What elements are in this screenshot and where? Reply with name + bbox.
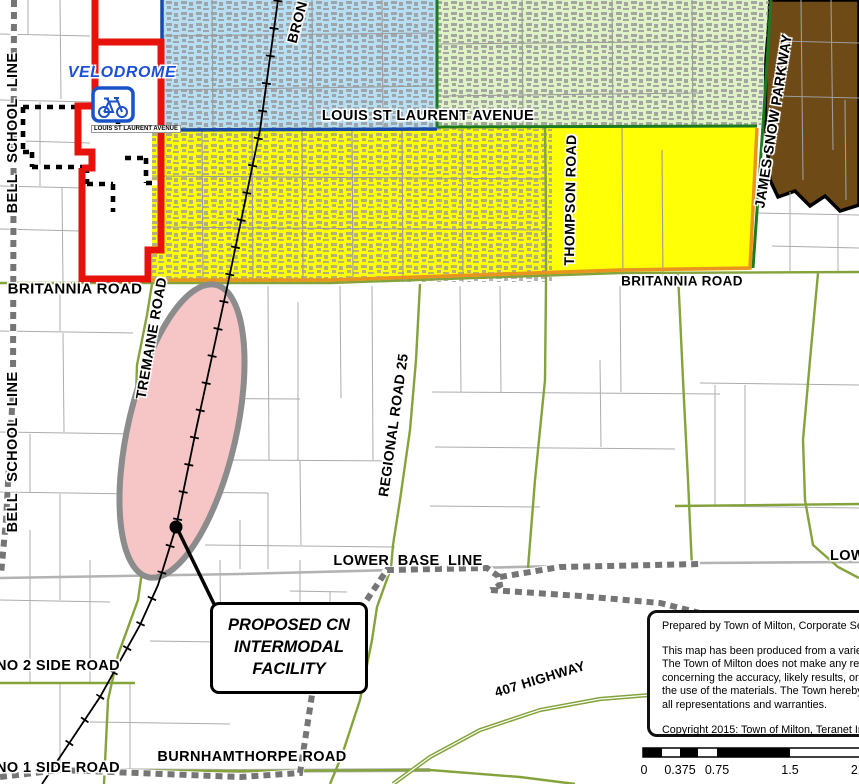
disclaimer-body-1: This map has been produced from a variet (662, 645, 859, 659)
callout-line-1: PROPOSED CN (228, 615, 350, 637)
velodrome-label: VELODROME (68, 64, 177, 82)
disclaimer-body-2: The Town of Milton does not make any rep (662, 658, 859, 672)
road-label-bell-school-line-south: BELL SCHOOL LINE (5, 372, 21, 533)
disclaimer-body-5: all representations and warranties. (662, 699, 859, 713)
road-label-louis-st-laurent-avenue: LOUIS ST LAURENT AVENUE (322, 108, 534, 124)
road-label-no-2-side-road: NO 2 SIDE ROAD (0, 658, 120, 674)
scale-bar (643, 748, 859, 757)
road-label-bell-school-line-north: BELL SCHOOL LINE (5, 53, 21, 214)
callout-line-2: INTERMODAL (234, 637, 344, 659)
road-label-no-1-side-road: NO 1 SIDE ROAD (0, 760, 120, 776)
callout-line-3: FACILITY (252, 659, 325, 681)
road-label-britannia-road-west: BRITANNIA ROAD (8, 281, 143, 298)
disclaimer-prepared: Prepared by Town of Milton, Corporate Se… (662, 620, 859, 634)
scale-label-225: 2.25 (851, 763, 859, 777)
road-label-burnhamthorpe-road: BURNHAMTHORPE ROAD (157, 749, 346, 765)
disclaimer-body-3: concerning the accuracy, likely results,… (662, 672, 859, 686)
road-label-thompson-road: THOMPSON ROAD (561, 134, 579, 265)
road-label-britannia-road-east: BRITANNIA ROAD (621, 274, 743, 289)
road-label-lower-base-line: LOWER BASE LINE (333, 553, 482, 569)
red-boundary-outline (78, 0, 161, 279)
proposed-facility-callout: PROPOSED CN INTERMODAL FACILITY (210, 602, 368, 694)
scale-label-0: 0 (641, 763, 648, 777)
facility-location-dot (170, 521, 183, 534)
scale-label-0375: 0.375 (664, 763, 695, 777)
disclaimer-body-4: the use of the materials. The Town hereb… (662, 685, 859, 699)
scale-label-075: 0.75 (705, 763, 729, 777)
bicycle-icon (93, 88, 133, 121)
map-canvas: BELL SCHOOL LINE BELL SCHOOL LINE BRON L… (0, 0, 859, 784)
scale-label-15: 1.5 (781, 763, 798, 777)
disclaimer-box: Prepared by Town of Milton, Corporate Se… (647, 610, 859, 737)
disclaimer-copyright: Copyright 2015: Town of Milton, Teranet … (662, 724, 859, 738)
road-label-lower-base-line-clipped: LOWER BASE LINE (830, 548, 859, 564)
louis-st-laurent-small-label: LOUIS ST LAURENT AVENUE (91, 125, 181, 133)
